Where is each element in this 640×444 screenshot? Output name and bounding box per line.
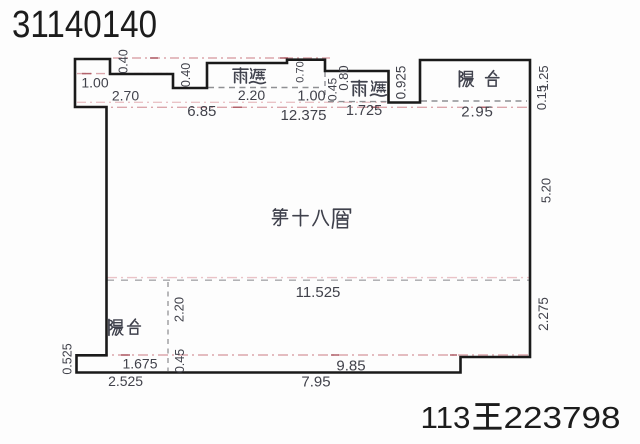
svg-text:0.40: 0.40 [179,63,193,87]
svg-text:1.00: 1.00 [81,75,108,91]
svg-text:2.525: 2.525 [108,373,143,389]
svg-text:113: 113 [421,400,471,435]
svg-text:2.20: 2.20 [172,297,187,322]
svg-text:2.70: 2.70 [112,88,139,104]
svg-text:0.925: 0.925 [394,66,409,100]
svg-text:2.95: 2.95 [461,104,493,121]
svg-text:0.40: 0.40 [116,49,130,73]
svg-text:2.20: 2.20 [238,87,265,103]
svg-text:11.525: 11.525 [296,284,341,301]
svg-text:5.20: 5.20 [539,178,554,203]
svg-text:6.85: 6.85 [187,103,216,120]
svg-text:0.45: 0.45 [173,349,187,373]
svg-text:1.675: 1.675 [122,356,157,372]
svg-text:12.375: 12.375 [281,107,327,124]
svg-text:223798: 223798 [504,400,621,435]
svg-text:1.00: 1.00 [297,89,325,105]
svg-text:9.85: 9.85 [336,358,365,375]
svg-text:0.80: 0.80 [336,65,351,90]
svg-text:31140140: 31140140 [12,4,157,46]
svg-text:2.275: 2.275 [536,297,551,331]
svg-text:0.525: 0.525 [60,343,74,374]
svg-text:7.95: 7.95 [301,374,330,391]
svg-text:0.15: 0.15 [534,85,549,110]
svg-text:0.70: 0.70 [294,61,306,82]
svg-text:1.725: 1.725 [346,103,382,119]
